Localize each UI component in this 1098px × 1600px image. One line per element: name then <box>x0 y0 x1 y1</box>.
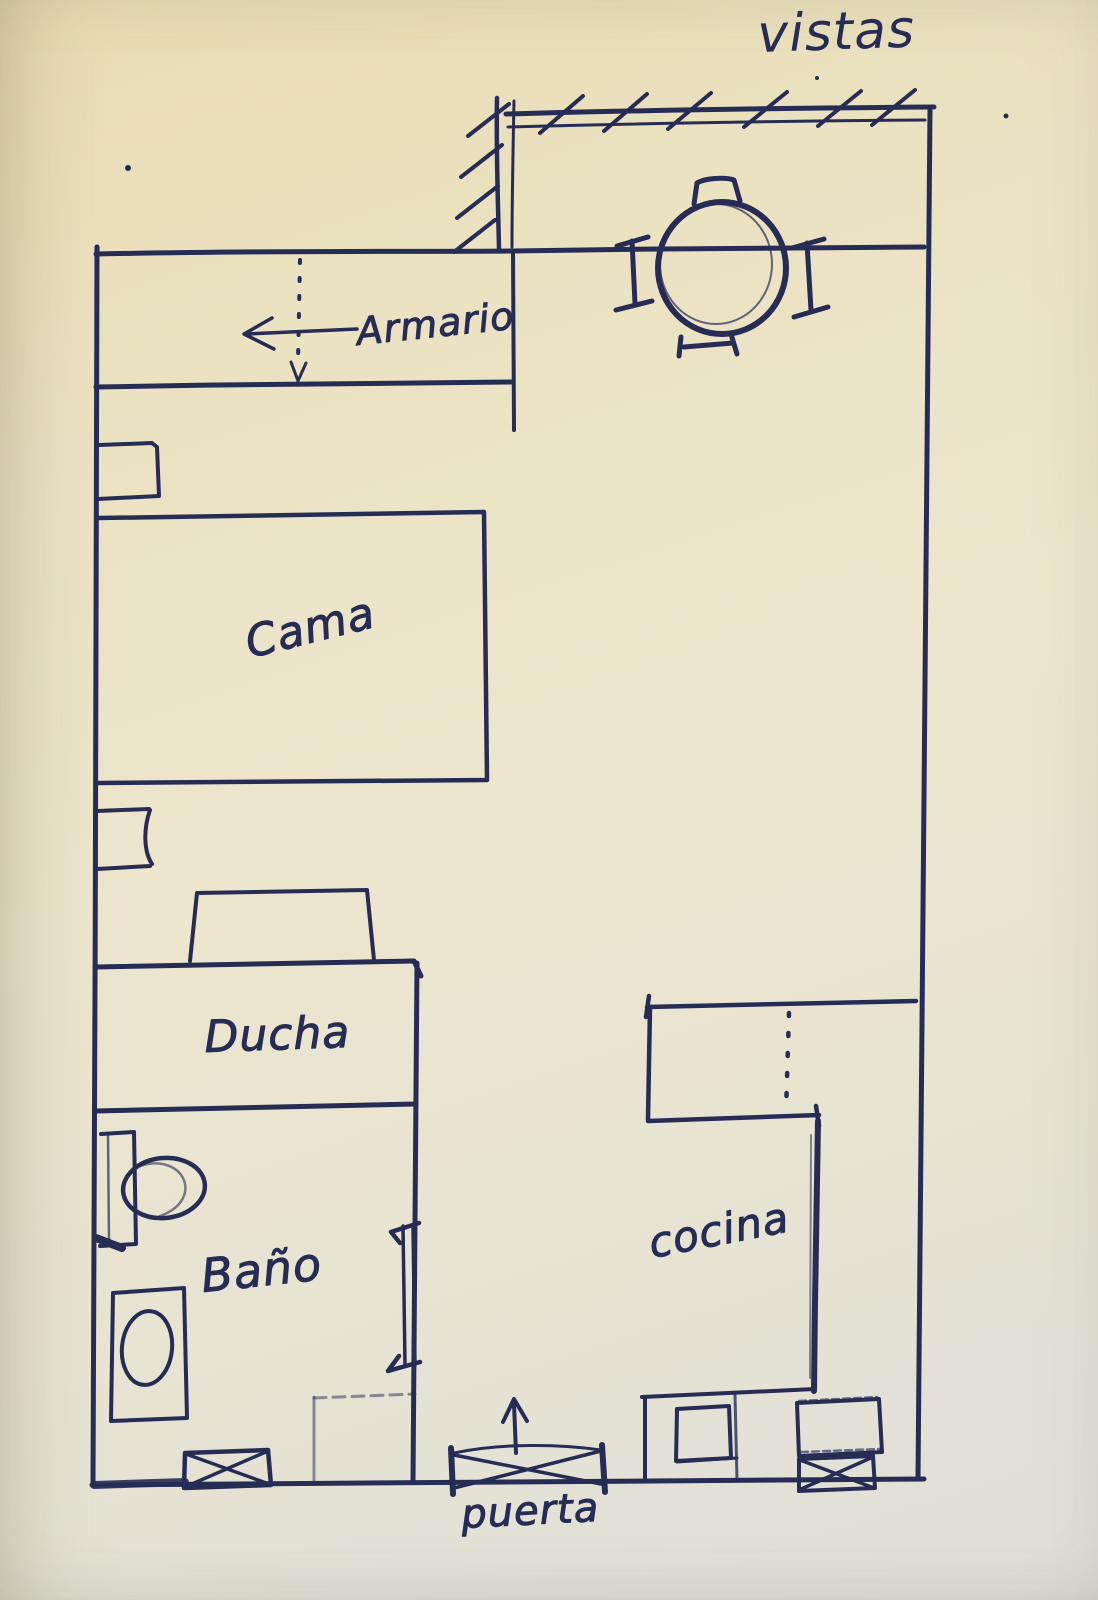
door-top-line <box>454 1445 601 1453</box>
kitchen-right-unit <box>797 1399 882 1456</box>
entry-door: puerta <box>451 1399 605 1538</box>
kitchen-upper-block-left <box>648 1007 650 1119</box>
table-top-sketch-line <box>660 204 772 324</box>
kitchen-label: cocina <box>645 1193 794 1268</box>
kitchen-xbox-x <box>799 1457 874 1490</box>
chair-bottom <box>679 334 737 356</box>
door-label: puerta <box>459 1485 600 1538</box>
wall-ducha-top <box>95 961 421 976</box>
wall-interior-stub <box>513 252 514 430</box>
nightstand-bottom <box>97 809 152 869</box>
armario-area: Armario <box>244 260 516 381</box>
floor-plan-drawing: Armario Cama Ducha Baño <box>0 0 1098 1600</box>
wall-bottom-thick-left <box>94 1482 185 1485</box>
wall-right <box>918 110 930 1478</box>
vistas-label: vistas <box>756 0 916 65</box>
sink-basin <box>118 1309 175 1388</box>
kitchen-partition-wall-sketch <box>810 1135 811 1378</box>
paper-sheet: Armario Cama Ducha Baño <box>0 0 1098 1600</box>
ink-dot <box>815 76 819 80</box>
toilet-tank <box>100 1132 136 1246</box>
bathroom-block: Ducha Baño <box>95 961 421 1488</box>
kitchen-unit-inner-edge <box>735 1395 737 1480</box>
ink-dot <box>1004 114 1009 119</box>
toilet-tank-inner-line <box>108 1135 109 1242</box>
wall-left <box>93 247 97 1484</box>
armario-label: Armario <box>351 294 516 355</box>
wall-top-window-inner <box>508 120 925 127</box>
kitchen-sliding-dotted-line <box>786 1013 789 1112</box>
bench-at-bath-wall <box>190 890 374 961</box>
kitchen-appliance-square <box>676 1406 731 1461</box>
armario-dotted-arrowhead <box>291 362 306 381</box>
nightstand-top <box>98 443 159 499</box>
armario-dotted-track <box>298 260 300 362</box>
shower-label: Ducha <box>204 1007 352 1063</box>
annotations: vistas <box>125 0 1009 171</box>
kitchen-upper-block-bottom <box>648 1106 819 1126</box>
toilet-bowl-sketch-arc <box>140 1163 185 1216</box>
armario-arrow-shaft <box>246 329 357 334</box>
wall-left-window-outer <box>497 98 499 249</box>
kitchen-partition-wall <box>814 1121 818 1391</box>
bathroom-door-leaf <box>403 1225 415 1365</box>
ink-dot <box>125 165 131 171</box>
bathroom-corner-cabinet-top <box>314 1394 415 1398</box>
dining-table <box>616 178 828 356</box>
wall-ducha-bano-divider <box>95 1104 416 1111</box>
wall-left-window-inner <box>512 101 514 247</box>
kitchen-counter-top-line <box>642 1389 815 1397</box>
bedroom: Cama <box>97 443 487 961</box>
chair-right <box>792 239 828 317</box>
kitchen-upper-block-top <box>646 996 916 1017</box>
kitchen: cocina <box>642 996 916 1491</box>
wall-armario-bottom <box>96 382 512 387</box>
bathroom-label: Baño <box>199 1237 325 1303</box>
bed-label: Cama <box>240 587 380 668</box>
kitchen-right-unit-scribbles <box>799 1397 880 1452</box>
